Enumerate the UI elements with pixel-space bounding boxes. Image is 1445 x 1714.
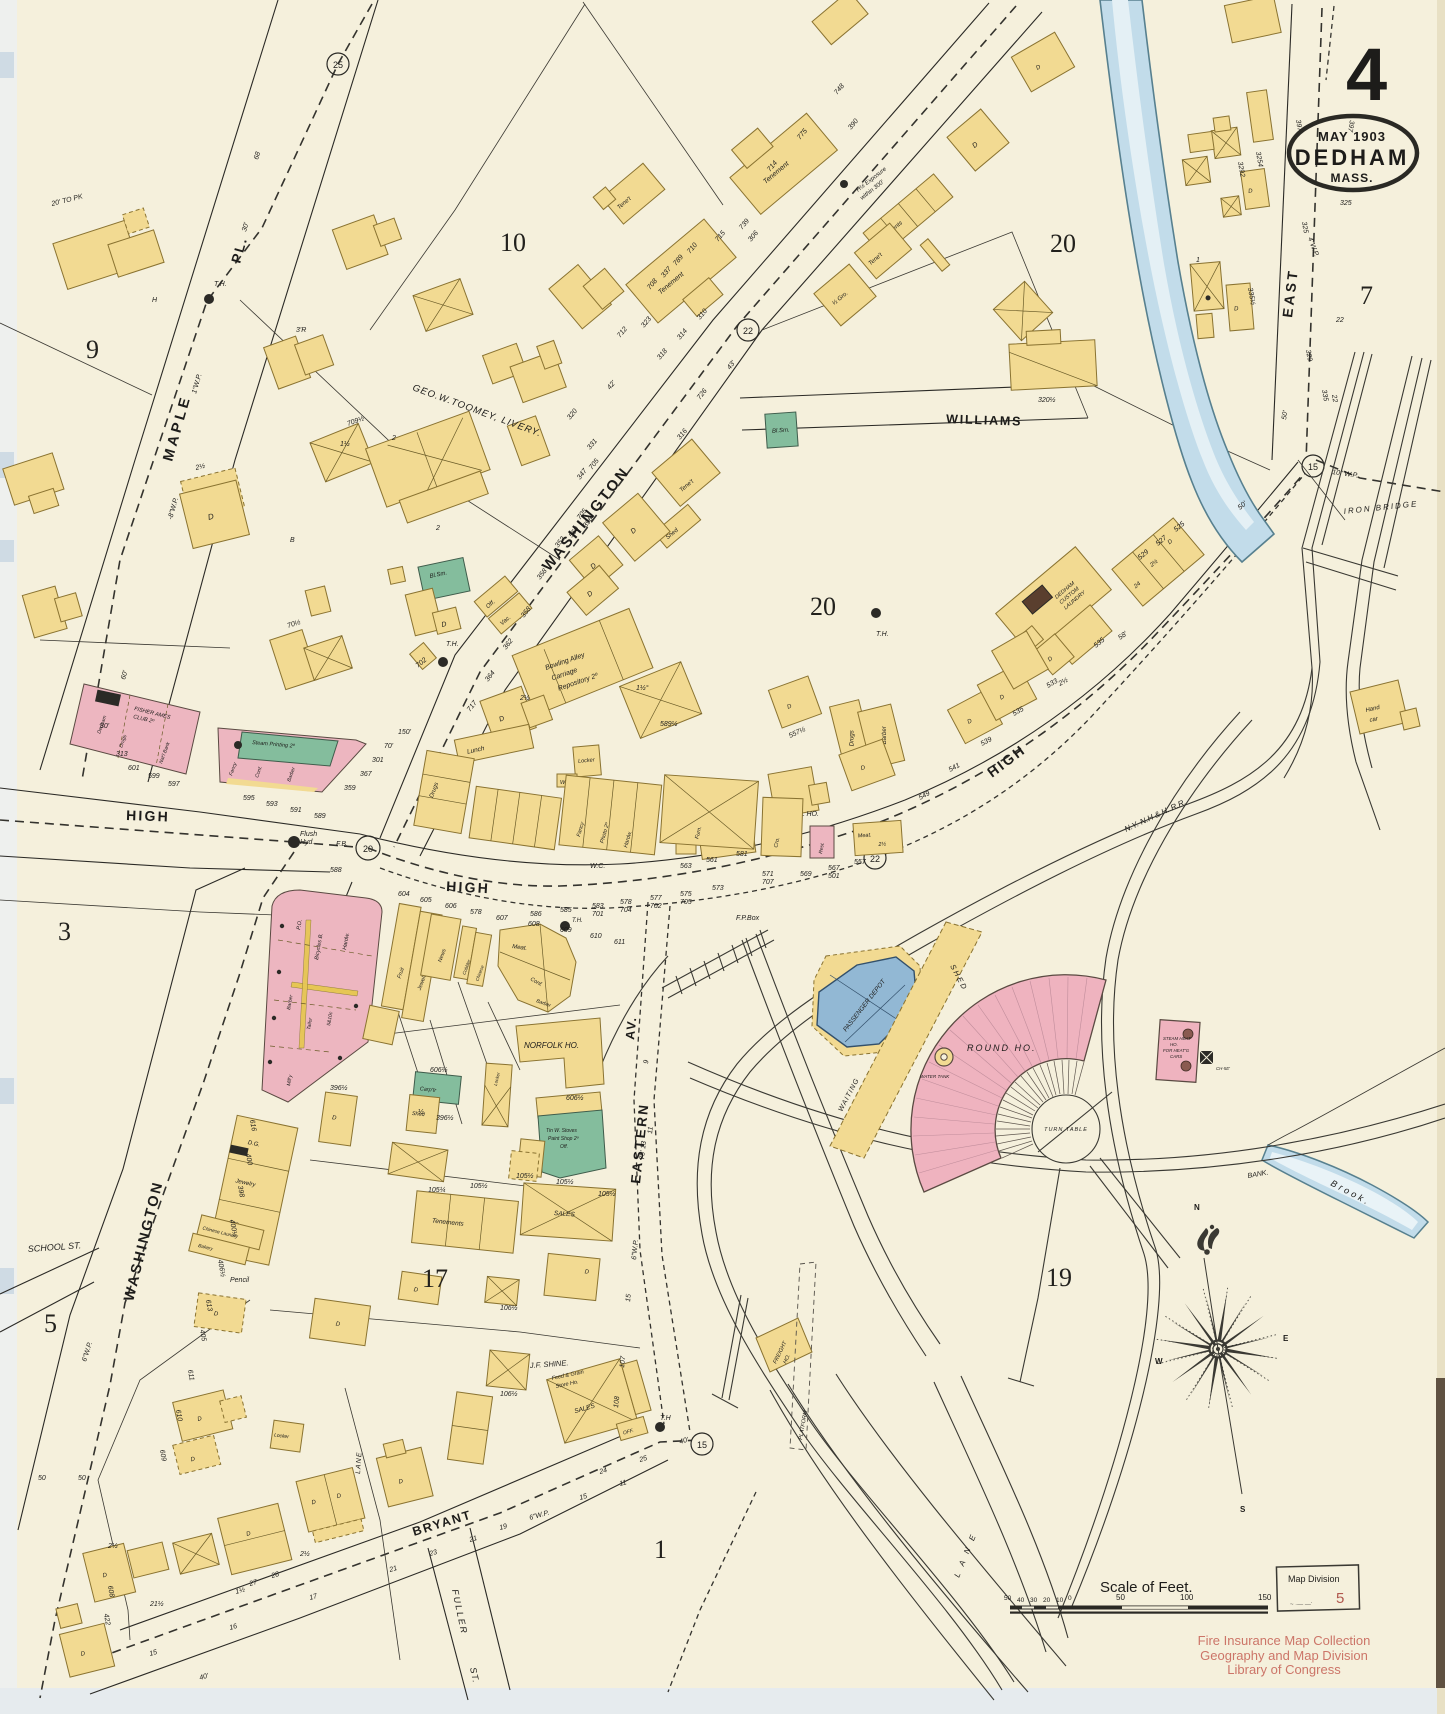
svg-text:Scale of Feet.: Scale of Feet. <box>1100 1579 1193 1596</box>
svg-text:577: 577 <box>650 895 663 902</box>
svg-text:593: 593 <box>266 801 278 808</box>
svg-text:F.B.: F.B. <box>336 841 348 848</box>
svg-text:Flush: Flush <box>300 831 317 838</box>
svg-text:597: 597 <box>168 781 181 788</box>
svg-text:561: 561 <box>706 857 718 864</box>
svg-text:601: 601 <box>128 765 140 772</box>
svg-text:150': 150' <box>398 729 412 736</box>
svg-text:10: 10 <box>1056 1597 1064 1604</box>
svg-text:CH-5E': CH-5E' <box>1216 1066 1230 1071</box>
svg-text:20: 20 <box>810 592 836 621</box>
svg-text:595: 595 <box>243 795 255 802</box>
svg-text:105½: 105½ <box>598 1190 616 1198</box>
svg-text:1: 1 <box>654 1535 667 1564</box>
svg-text:T.H: T.H <box>660 1415 672 1422</box>
svg-text:½: ½ <box>418 1108 424 1116</box>
svg-text:586: 586 <box>530 911 542 918</box>
svg-text:W.C.: W.C. <box>590 863 605 870</box>
svg-text:606½: 606½ <box>566 1094 584 1102</box>
svg-text:557: 557 <box>854 859 867 866</box>
svg-text:FOR HEAT'G: FOR HEAT'G <box>1163 1048 1190 1053</box>
svg-text:3'R: 3'R <box>296 327 306 334</box>
svg-text:70': 70' <box>384 743 394 750</box>
svg-text:705: 705 <box>680 899 692 906</box>
svg-text:CARS: CARS <box>1170 1054 1182 1059</box>
svg-text:571: 571 <box>762 871 774 878</box>
svg-text:610: 610 <box>590 933 602 940</box>
svg-text:301: 301 <box>372 757 384 764</box>
svg-text:Drugs: Drugs <box>850 730 856 746</box>
svg-text:Hyd.: Hyd. <box>300 839 314 846</box>
svg-text:359: 359 <box>344 785 356 792</box>
svg-text:704: 704 <box>620 907 632 914</box>
svg-text:HIGH: HIGH <box>446 878 491 896</box>
svg-text:367: 367 <box>360 771 373 778</box>
svg-text:575: 575 <box>680 891 692 898</box>
svg-text:9: 9 <box>86 335 99 364</box>
svg-text:NORFOLK HO.: NORFOLK HO. <box>524 1041 579 1050</box>
svg-text:567: 567 <box>828 865 841 872</box>
svg-text:563: 563 <box>680 863 692 870</box>
svg-text:20: 20 <box>1050 229 1076 258</box>
svg-text:Geography and Map Division: Geography and Map Division <box>1200 1648 1368 1663</box>
svg-text:T.H.: T.H. <box>446 641 459 648</box>
svg-text:701: 701 <box>592 911 604 918</box>
svg-text:707: 707 <box>762 879 775 886</box>
svg-text:606½: 606½ <box>430 1066 448 1074</box>
svg-text:108: 108 <box>613 1396 621 1408</box>
svg-text:15: 15 <box>625 1294 633 1303</box>
svg-text:20: 20 <box>1043 1597 1051 1604</box>
svg-text:TURN TABLE: TURN TABLE <box>1044 1127 1088 1133</box>
svg-text:11: 11 <box>647 1126 655 1134</box>
svg-text:2½: 2½ <box>519 694 530 702</box>
svg-text:581: 581 <box>736 851 748 858</box>
svg-text:22: 22 <box>870 854 880 864</box>
svg-text:HO.: HO. <box>1170 1042 1178 1047</box>
svg-text:105½: 105½ <box>556 1178 574 1186</box>
svg-text:609: 609 <box>560 927 572 934</box>
svg-text:591: 591 <box>290 807 302 814</box>
svg-text:S: S <box>1240 1505 1246 1514</box>
svg-text:MAY 1903: MAY 1903 <box>1318 129 1386 144</box>
svg-text:30: 30 <box>1030 1597 1038 1604</box>
svg-text:Bl.Sm.: Bl.Sm. <box>772 427 790 434</box>
svg-text:5: 5 <box>44 1309 57 1338</box>
svg-text:105¼: 105¼ <box>428 1187 446 1194</box>
svg-text:50: 50 <box>78 1475 86 1482</box>
svg-text:50: 50 <box>38 1475 46 1482</box>
svg-text:0: 0 <box>1068 1595 1072 1602</box>
svg-text:E: E <box>1283 1334 1289 1343</box>
svg-text:T.H.: T.H. <box>572 918 583 924</box>
svg-text:2: 2 <box>435 525 440 532</box>
svg-text:DEDHAM: DEDHAM <box>1295 145 1410 170</box>
svg-text:Paint Shop 2º: Paint Shop 2º <box>548 1136 579 1142</box>
svg-text:50: 50 <box>1116 1593 1125 1602</box>
svg-text:611: 611 <box>614 939 625 946</box>
svg-text:22: 22 <box>1335 317 1344 324</box>
svg-text:Tin W. Stoves: Tin W. Stoves <box>546 1128 577 1134</box>
svg-text:N: N <box>1194 1203 1200 1212</box>
svg-text:Library of Congress: Library of Congress <box>1227 1662 1341 1677</box>
svg-text:2½: 2½ <box>877 840 887 848</box>
svg-text:Pencil: Pencil <box>230 1277 250 1284</box>
svg-text:501: 501 <box>828 873 840 880</box>
svg-text:313: 313 <box>116 751 128 758</box>
svg-text:B: B <box>290 537 295 544</box>
svg-text:150: 150 <box>1258 1593 1272 1602</box>
svg-text:105½: 105½ <box>516 1172 534 1180</box>
svg-text:19: 19 <box>1046 1263 1072 1292</box>
svg-text:107: 107 <box>619 1355 627 1368</box>
svg-text:Fire Insurance Map Collection: Fire Insurance Map Collection <box>1198 1633 1371 1648</box>
svg-text:1: 1 <box>1196 257 1200 264</box>
svg-text:T.H.: T.H. <box>214 281 227 288</box>
svg-text:F.P.Box: F.P.Box <box>736 915 760 922</box>
svg-text:50: 50 <box>1004 1595 1012 1602</box>
svg-text:589½: 589½ <box>660 720 678 728</box>
svg-text:ROUND HO.: ROUND HO. <box>967 1043 1037 1053</box>
svg-text:15: 15 <box>1308 462 1318 472</box>
svg-text:573: 573 <box>712 885 724 892</box>
svg-text:WILLIAMS: WILLIAMS <box>946 412 1023 429</box>
svg-text:589: 589 <box>314 813 326 820</box>
svg-text:Map Division: Map Division <box>1288 1574 1340 1584</box>
svg-text:2½: 2½ <box>299 1550 310 1558</box>
svg-text:HIGH: HIGH <box>126 807 170 825</box>
svg-text:606: 606 <box>445 903 457 910</box>
svg-text:MASS.: MASS. <box>1330 171 1373 185</box>
svg-text:2½: 2½ <box>107 1542 118 1550</box>
svg-text:WATER TANK: WATER TANK <box>920 1074 950 1079</box>
svg-text:W: W <box>1155 1357 1163 1366</box>
svg-text:1½: 1½ <box>340 440 350 448</box>
svg-text:325: 325 <box>1340 200 1352 207</box>
svg-text:~ ·— —': ~ ·— —' <box>1290 1602 1312 1608</box>
svg-text:105½: 105½ <box>470 1182 488 1190</box>
svg-text:Off.: Off. <box>560 1144 568 1150</box>
svg-text:702: 702 <box>650 903 662 910</box>
svg-text:1½°: 1½° <box>636 684 649 692</box>
svg-text:607: 607 <box>496 915 509 922</box>
svg-text:585: 585 <box>560 907 572 914</box>
svg-text:2: 2 <box>391 435 396 442</box>
svg-text:10: 10 <box>500 228 526 257</box>
svg-text:320½: 320½ <box>1038 396 1056 404</box>
svg-text:4: 4 <box>1346 33 1387 116</box>
svg-text:604: 604 <box>398 891 410 898</box>
svg-text:599: 599 <box>148 773 160 780</box>
svg-text:100: 100 <box>1180 1593 1194 1602</box>
svg-text:15: 15 <box>697 1440 707 1450</box>
svg-text:578: 578 <box>470 909 482 916</box>
svg-text:25: 25 <box>333 60 343 70</box>
svg-text:STEAM HEAT: STEAM HEAT <box>1163 1036 1191 1041</box>
svg-text:21½: 21½ <box>149 1600 164 1608</box>
svg-text:17: 17 <box>422 1264 448 1293</box>
svg-text:22: 22 <box>743 326 753 336</box>
svg-text:3: 3 <box>58 917 71 946</box>
svg-text:7: 7 <box>1360 281 1373 310</box>
svg-text:569: 569 <box>800 871 812 878</box>
svg-text:583: 583 <box>592 903 604 910</box>
svg-text:5: 5 <box>1336 1590 1344 1607</box>
svg-text:608: 608 <box>528 921 540 928</box>
svg-text:106½: 106½ <box>500 1304 518 1312</box>
svg-text:40: 40 <box>1017 1597 1025 1604</box>
svg-text:396½: 396½ <box>330 1084 348 1092</box>
svg-text:396½: 396½ <box>436 1114 454 1122</box>
svg-text:AV.: AV. <box>623 1015 639 1040</box>
svg-text:605: 605 <box>420 897 432 904</box>
svg-text:588: 588 <box>330 867 342 874</box>
svg-text:106½: 106½ <box>500 1390 518 1398</box>
svg-text:578: 578 <box>620 899 632 906</box>
svg-text:T.H.: T.H. <box>876 631 889 638</box>
svg-text:Meat.: Meat. <box>858 832 872 839</box>
svg-text:30': 30' <box>100 723 110 730</box>
